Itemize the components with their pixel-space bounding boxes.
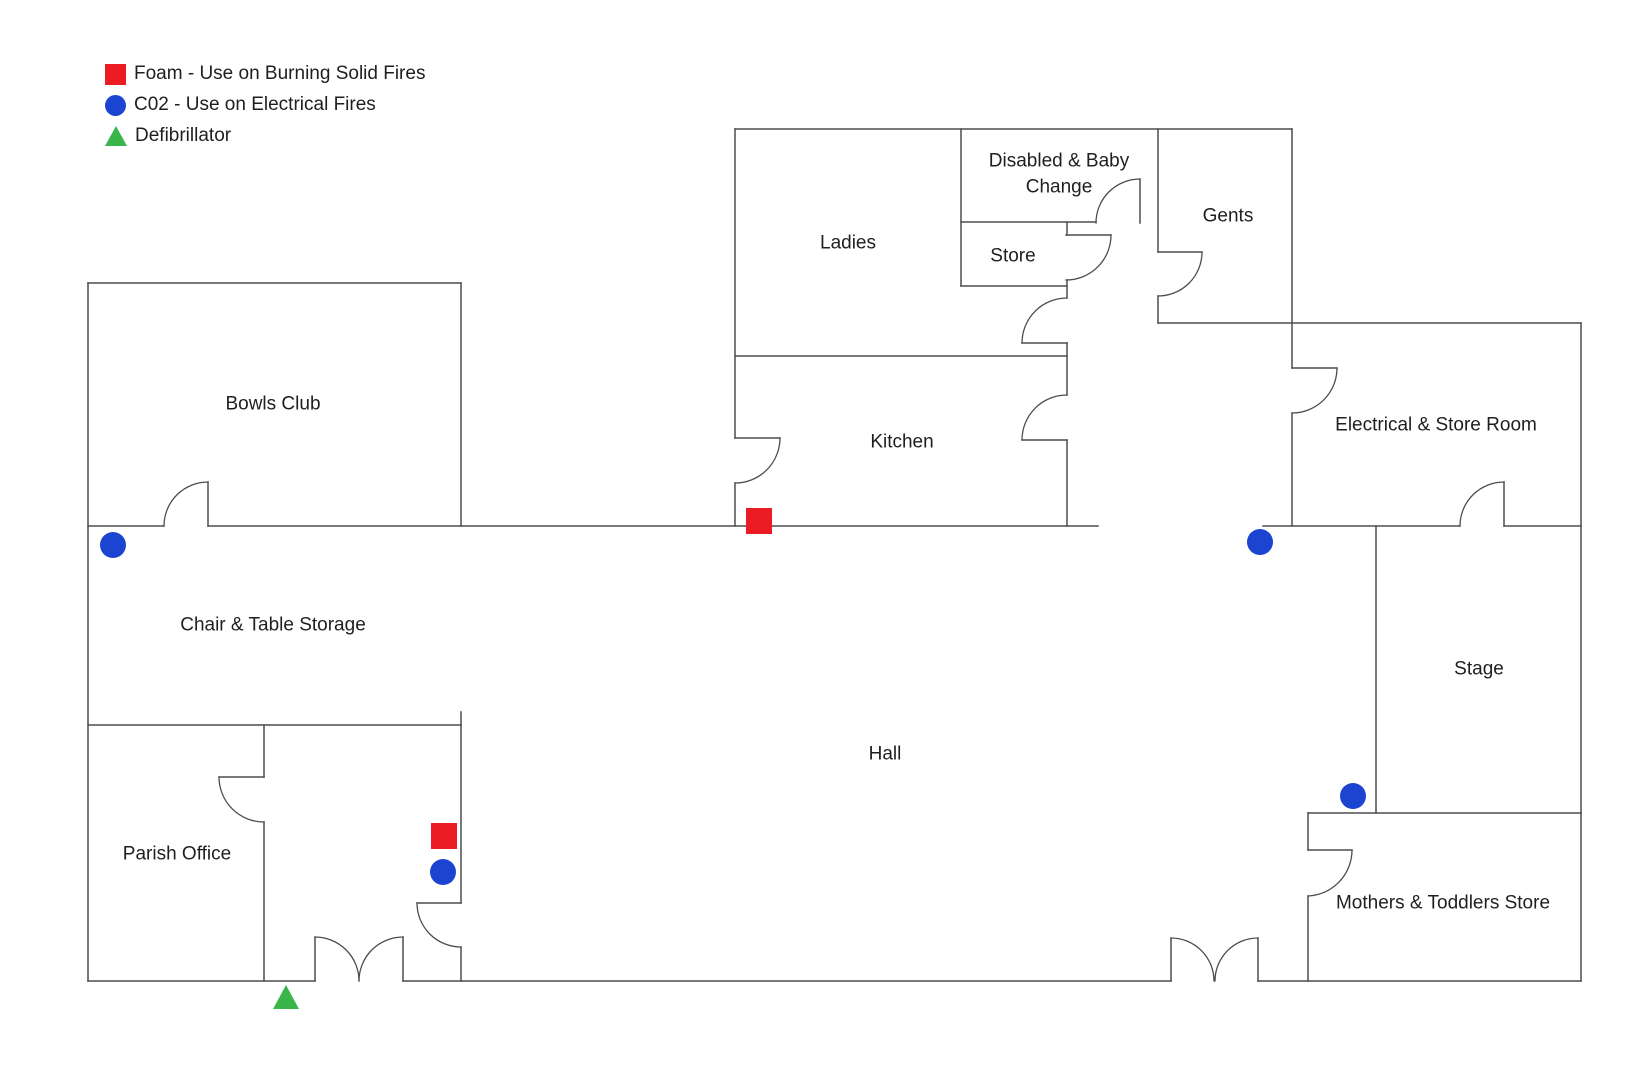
legend-item-defibrillator: Defibrillator [105,125,425,147]
legend-label-foam: Foam - Use on Burning Solid Fires [134,63,425,85]
room-label-disabled-baby-change: Change [1026,177,1093,198]
door-arc [1308,850,1352,896]
room-label-store: Store [990,246,1035,267]
room-label-mothers-toddlers-store: Mothers & Toddlers Store [1336,893,1550,914]
room-label-disabled-baby-change: Disabled & Baby [989,151,1130,172]
door-arc [1215,938,1258,981]
legend-item-foam: Foam - Use on Burning Solid Fires [105,63,425,85]
door-arc [1171,938,1214,981]
foam-extinguisher-icon [105,64,126,85]
door-arc [1066,235,1111,280]
door-arc [219,777,264,822]
defibrillator-marker [273,985,299,1009]
room-label-chair-table-storage: Chair & Table Storage [180,615,366,636]
door-arc [359,937,403,981]
door-arc [1022,298,1067,343]
room-label-kitchen: Kitchen [870,432,933,453]
co2-marker [100,532,126,558]
co2-marker [1247,529,1273,555]
room-label-parish-office: Parish Office [123,844,231,865]
legend-label-co2: C02 - Use on Electrical Fires [134,94,376,116]
legend-item-co2: C02 - Use on Electrical Fires [105,94,425,116]
floor-plan-drawing: Bowls ClubLadiesDisabled & BabyChangeSto… [0,0,1644,1080]
legend: Foam - Use on Burning Solid Fires C02 - … [105,63,425,156]
foam-marker [431,823,457,849]
room-label-electrical-store-room: Electrical & Store Room [1335,415,1537,436]
door-arc [735,438,780,483]
co2-marker [430,859,456,885]
defibrillator-icon [105,126,127,146]
door-arc [1096,179,1140,223]
door-arc [1460,482,1504,526]
door-arc [1158,252,1202,296]
room-label-stage: Stage [1454,659,1504,680]
door-arc [1292,368,1337,413]
door-arc [417,903,461,947]
door-arc [164,482,208,526]
room-label-ladies: Ladies [820,233,876,254]
co2-marker [1340,783,1366,809]
room-label-hall: Hall [869,744,902,765]
floor-plan-canvas: Foam - Use on Burning Solid Fires C02 - … [0,0,1644,1080]
room-label-gents: Gents [1203,206,1254,227]
legend-label-defibrillator: Defibrillator [135,125,231,147]
room-label-bowls-club: Bowls Club [225,394,320,415]
co2-extinguisher-icon [105,95,126,116]
door-arc [315,937,359,981]
foam-marker [746,508,772,534]
door-arc [1022,395,1067,440]
